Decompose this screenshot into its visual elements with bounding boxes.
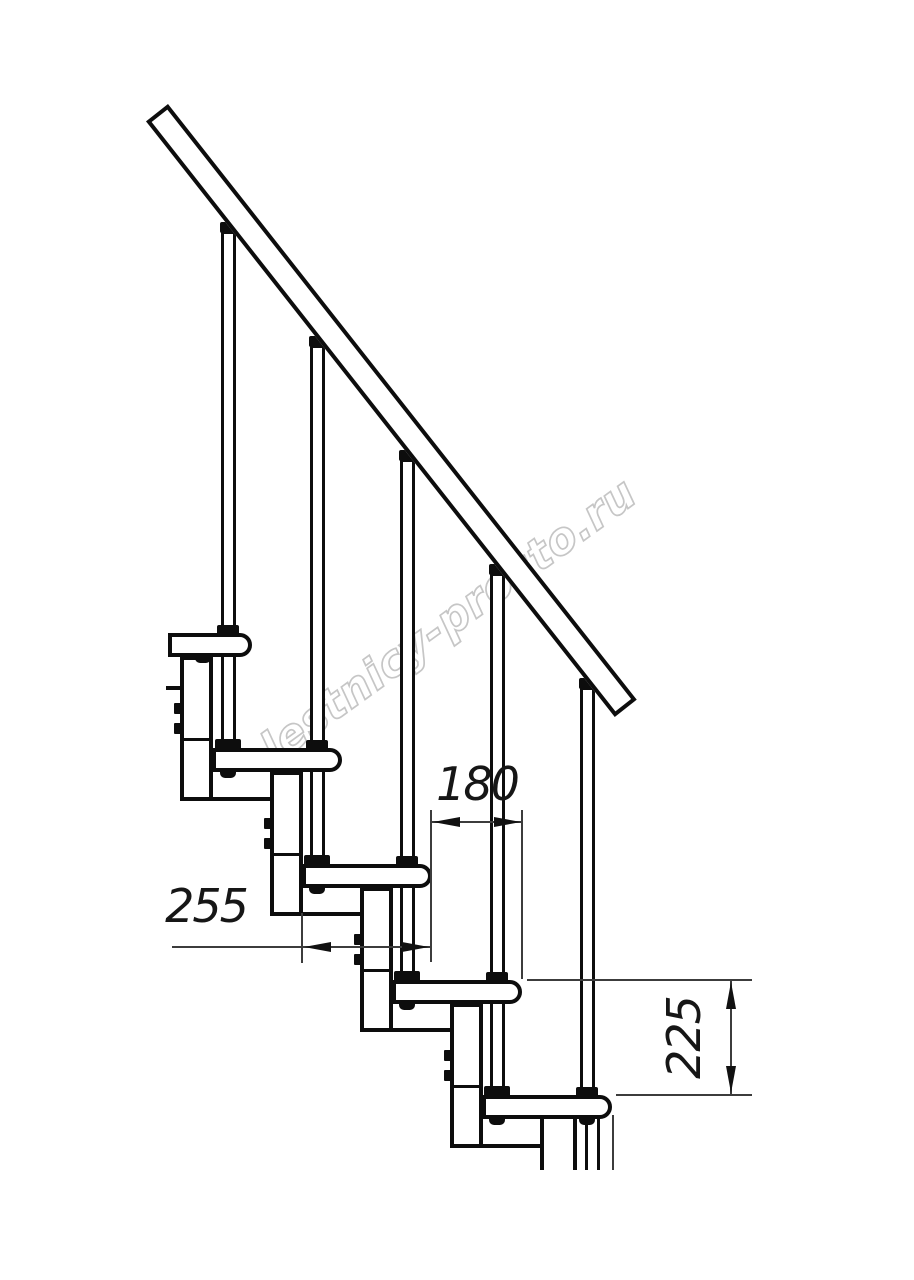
column-bolt-2-b <box>264 838 274 849</box>
column-base-flange-2 <box>299 912 361 916</box>
tread-4 <box>392 980 522 1004</box>
dim-225-label: 225 <box>658 993 710 1083</box>
column-seam-1 <box>180 738 213 741</box>
support-column-3 <box>360 887 393 1032</box>
baluster-tread-mount-1 <box>217 625 239 635</box>
column-seam-2 <box>270 853 303 856</box>
support-column-4 <box>450 1003 483 1148</box>
support-column-2 <box>270 771 303 916</box>
baluster-2 <box>310 345 325 870</box>
dim-225-arrow-up <box>726 982 736 1009</box>
baluster-1 <box>221 231 236 754</box>
dim-255-extension-left <box>301 913 303 963</box>
column-bolt-3-a <box>354 934 364 945</box>
dim-255-arrow-left <box>304 942 331 952</box>
baluster-3 <box>400 459 415 986</box>
column-bolt-3-b <box>354 954 364 965</box>
dim-225-extension-top <box>527 979 752 981</box>
column-base-flange-1 <box>209 797 271 801</box>
column-base-flange-3 <box>389 1028 451 1032</box>
dim-180-label: 180 <box>432 758 522 810</box>
baluster-tread-mount-5 <box>576 1087 598 1097</box>
baluster-4 <box>490 573 505 1101</box>
column-bolt-2-a <box>264 818 274 829</box>
column-seam-3 <box>360 969 393 972</box>
column-bolt-4-b <box>444 1070 454 1081</box>
column-bolt-1-b <box>174 723 184 734</box>
tread-5 <box>482 1095 612 1119</box>
baluster-5-lower-segment <box>585 1118 600 1170</box>
baluster-base-mount-3 <box>394 971 420 982</box>
baluster-tread-mount-4 <box>486 972 508 982</box>
column-bolt-1-a <box>174 703 184 714</box>
dim-180-extension-right <box>521 810 523 979</box>
column-bracket-tick-1 <box>166 686 182 690</box>
cut-line <box>612 1115 614 1170</box>
dim-255-line <box>172 946 432 948</box>
dim-225-arrow-down <box>726 1066 736 1093</box>
baluster-tread-mount-3 <box>396 856 418 866</box>
dim-180-extension-left <box>430 810 432 962</box>
column-seam-4 <box>450 1085 483 1088</box>
tread-1 <box>168 633 252 657</box>
baluster-5 <box>580 687 595 1101</box>
baluster-base-mount-1 <box>215 739 241 750</box>
column-bolt-4-a <box>444 1050 454 1061</box>
baluster-base-mount-4 <box>484 1086 510 1097</box>
staircase-drawing: lestnicy-prosto.ru 180 255 225 <box>0 0 914 1280</box>
dim-255-label: 255 <box>161 880 251 932</box>
support-column-5 <box>540 1118 577 1170</box>
column-base-flange-4 <box>479 1144 541 1148</box>
tread-2 <box>212 748 342 772</box>
baluster-base-mount-2 <box>304 855 330 866</box>
baluster-tread-mount-2 <box>306 740 328 750</box>
dim-180-arrow-left <box>433 817 460 827</box>
dim-180-arrow-right <box>494 817 521 827</box>
support-column-1 <box>180 656 213 801</box>
tread-3 <box>302 864 432 888</box>
dim-255-arrow-right <box>402 942 429 952</box>
